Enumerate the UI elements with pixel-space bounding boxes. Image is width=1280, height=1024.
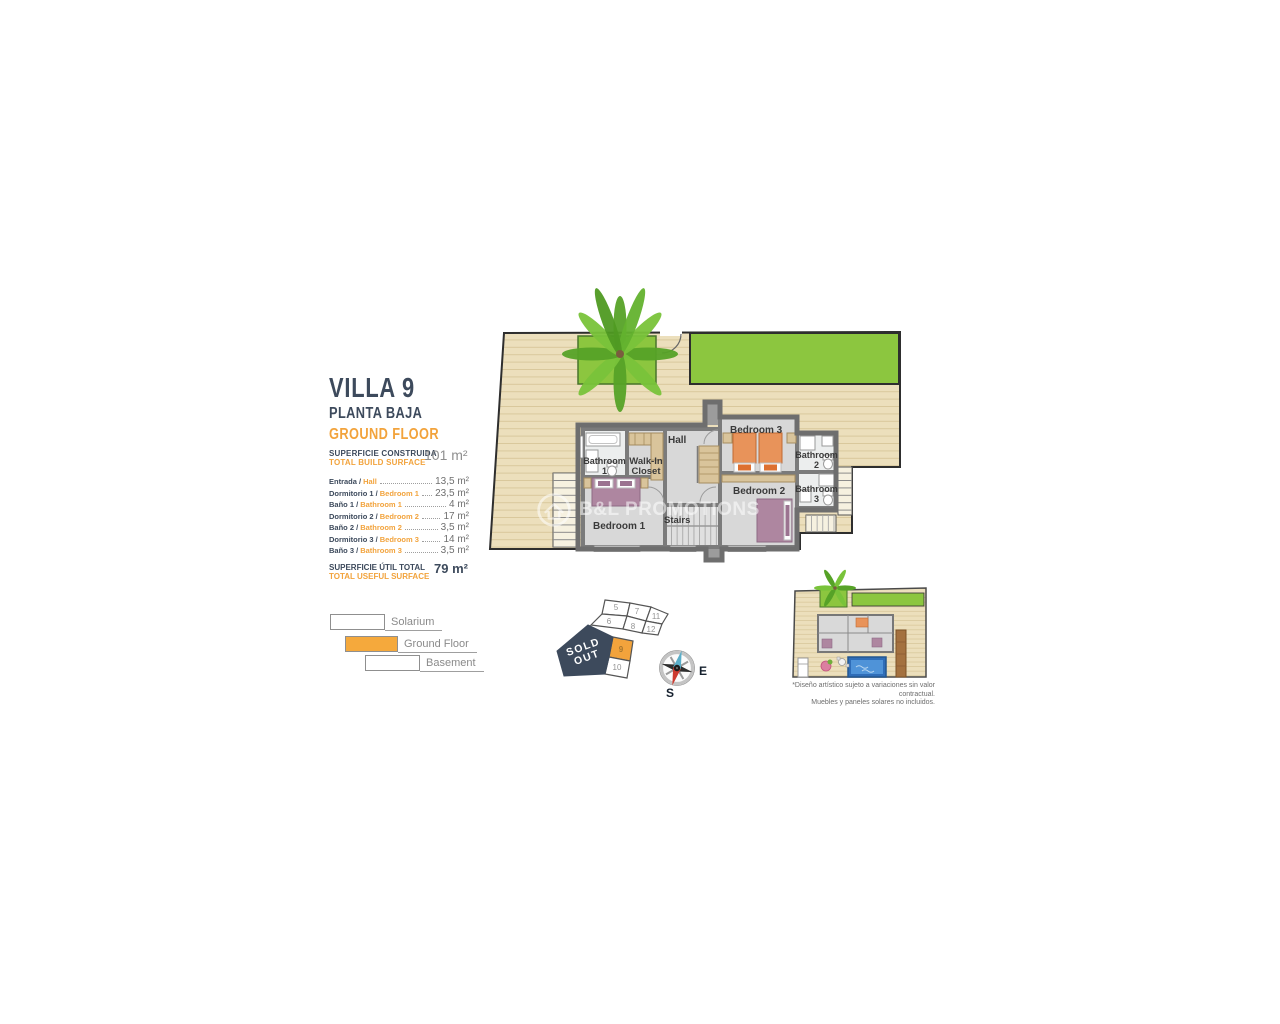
- compass-east-label: E: [699, 664, 707, 678]
- plot-number-6: 6: [607, 617, 612, 626]
- site-lounge-chair: [798, 658, 808, 677]
- room-name-en: Bedroom 3: [380, 535, 419, 544]
- room-name-en: Bathroom 1: [360, 500, 402, 509]
- room-name-es: Dormitorio 2 /: [329, 512, 378, 521]
- build-surface-label-es: SUPERFICIE CONSTRUIDA: [329, 449, 437, 458]
- legend-label-ground-floor: Ground Floor: [398, 638, 477, 653]
- plot-number-11: 11: [652, 612, 661, 621]
- site-pool: [848, 657, 886, 677]
- label-bathroom3: Bathroom 3: [794, 484, 839, 504]
- legend-swatch-ground-floor: [345, 636, 398, 652]
- plot-number-10: 10: [613, 663, 622, 672]
- room-name-en: Bedroom 1: [380, 489, 419, 498]
- room-name-es: Dormitorio 1 /: [329, 489, 378, 498]
- bathtub: [586, 433, 620, 446]
- page-title: VILLA 9: [329, 372, 415, 404]
- dotted-leader: [405, 529, 438, 530]
- site-house: [818, 615, 893, 652]
- plot-number-5: 5: [614, 603, 619, 612]
- legend-label-solarium: Solarium: [385, 616, 442, 631]
- site-lawn: [852, 593, 924, 606]
- plot-number-12: 12: [647, 625, 656, 634]
- legend-label-basement: Basement: [420, 657, 484, 672]
- room-name-es: Entrada /: [329, 477, 361, 486]
- build-surface-label-en: TOTAL BUILD SURFACE: [329, 458, 426, 467]
- nightstand: [641, 478, 648, 488]
- room-name-en: Hall: [363, 477, 377, 486]
- useful-surface-label-en: TOTAL USEFUL SURFACE: [329, 572, 429, 581]
- compass-south-label: S: [666, 686, 674, 700]
- plot-number-8: 8: [631, 622, 636, 631]
- disclaimer-line1: *Diseño artístico sujeto a variaciones s…: [770, 682, 935, 699]
- label-walkin-closet: Walk-In Closet: [621, 457, 671, 477]
- page: VILLA 9 PLANTA BAJA GROUND FLOOR SUPERFI…: [0, 0, 1280, 1024]
- sink: [822, 436, 833, 446]
- bed-twin-right: [759, 433, 782, 472]
- watermark-text: B&L PROMOTIONS: [579, 499, 760, 521]
- site-plan-thumbnail: [790, 560, 930, 685]
- floor-name-spanish: PLANTA BAJA: [329, 405, 422, 423]
- dotted-leader: [422, 495, 432, 496]
- label-hall: Hall: [668, 436, 686, 446]
- compass-icon: E S: [657, 646, 707, 700]
- plot-number-7: 7: [635, 607, 640, 616]
- label-bathroom2: Bathroom 2: [794, 450, 839, 470]
- nightstand: [584, 478, 591, 488]
- bed-twin-left: [733, 433, 756, 472]
- room-name-es: Baño 2 /: [329, 523, 358, 532]
- useful-surface-label-es: SUPERFICIE ÚTIL TOTAL: [329, 563, 425, 572]
- disclaimer-line2: Muebles y paneles solares no incluidos.: [770, 699, 935, 708]
- dotted-leader: [405, 552, 438, 553]
- room-name-en: Bathroom 3: [360, 546, 402, 555]
- dotted-leader: [422, 541, 440, 542]
- palm-tree-icon: [562, 286, 678, 412]
- room-name-es: Baño 1 /: [329, 500, 358, 509]
- watermark: B&L PROMOTIONS: [536, 492, 760, 528]
- shower: [800, 436, 815, 450]
- plot-number-9: 9: [619, 645, 624, 654]
- room-name-en: Bathroom 2: [360, 523, 402, 532]
- lawn: [690, 333, 899, 384]
- legend-swatch-basement: [365, 655, 420, 671]
- floor-name-english: GROUND FLOOR: [329, 426, 439, 444]
- floor-plan: [440, 280, 940, 580]
- plot-map: SOLD OUT 5 7 11 6 8 12 9 10 E: [550, 588, 710, 700]
- dotted-leader: [380, 483, 432, 484]
- disclaimer: *Diseño artístico sujeto a variaciones s…: [770, 682, 935, 708]
- room-name-es: Dormitorio 3 /: [329, 535, 378, 544]
- room-name-en: Bedroom 2: [380, 512, 419, 521]
- room-name-es: Baño 3 /: [329, 546, 358, 555]
- hall-wood-stair: [698, 446, 720, 483]
- dotted-leader: [422, 518, 440, 519]
- label-bedroom3: Bedroom 3: [730, 426, 782, 436]
- site-deck-strip: [896, 630, 906, 677]
- legend-swatch-solarium: [330, 614, 385, 630]
- promoter-logo-icon: [536, 492, 572, 528]
- bed-double-bedroom2: [757, 499, 792, 542]
- bedroom2-wardrobe: [722, 475, 795, 482]
- deck-gate-gap: [660, 329, 682, 336]
